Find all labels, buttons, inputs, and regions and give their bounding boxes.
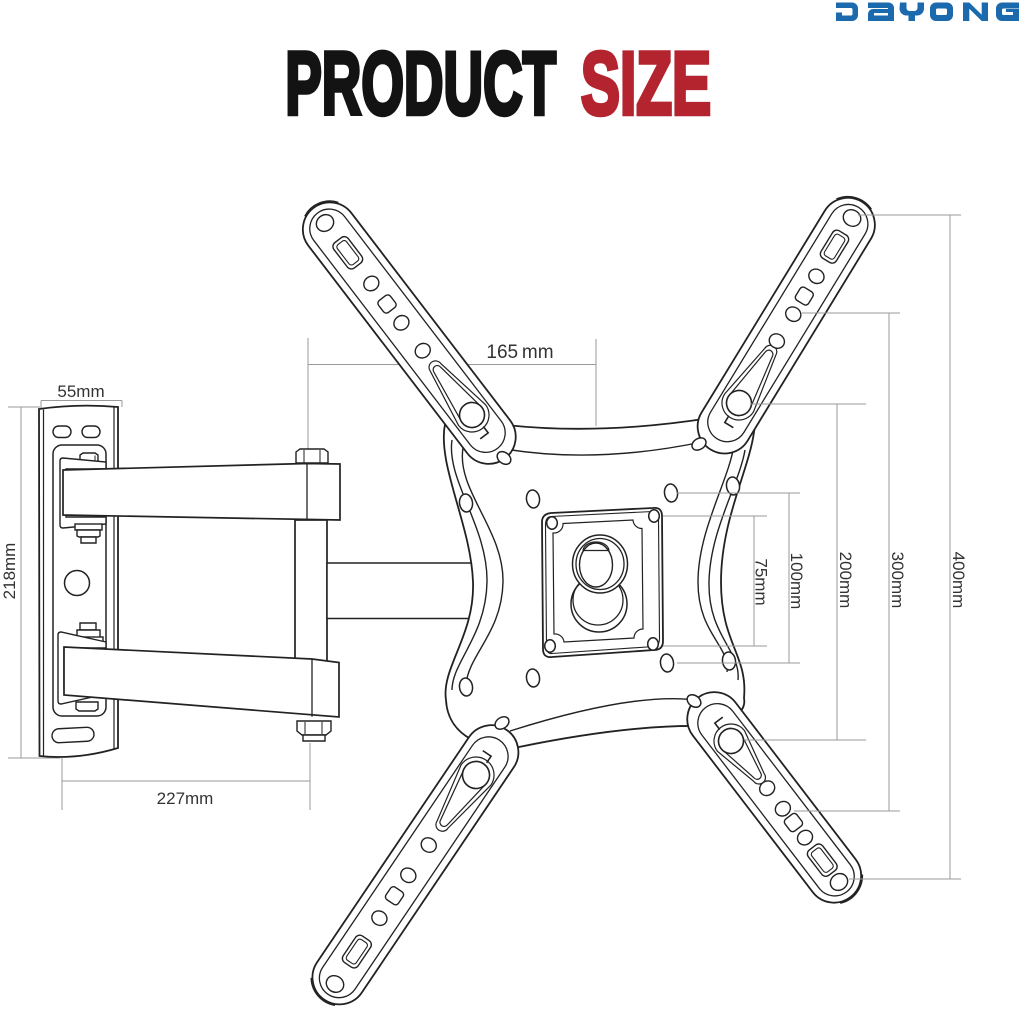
svg-text:227mm: 227mm (157, 789, 214, 808)
svg-text:75mm: 75mm (752, 558, 771, 605)
svg-text:400mm: 400mm (949, 552, 968, 609)
svg-text:200mm: 200mm (836, 552, 855, 609)
svg-text:PRODUCT: PRODUCT (285, 33, 556, 133)
svg-text:55mm: 55mm (57, 382, 104, 401)
svg-text:SIZE: SIZE (581, 33, 711, 133)
svg-text:300mm: 300mm (888, 552, 907, 609)
svg-text:100mm: 100mm (787, 553, 806, 610)
svg-text:218mm: 218mm (0, 543, 19, 600)
svg-text:165 mm: 165 mm (486, 342, 553, 363)
